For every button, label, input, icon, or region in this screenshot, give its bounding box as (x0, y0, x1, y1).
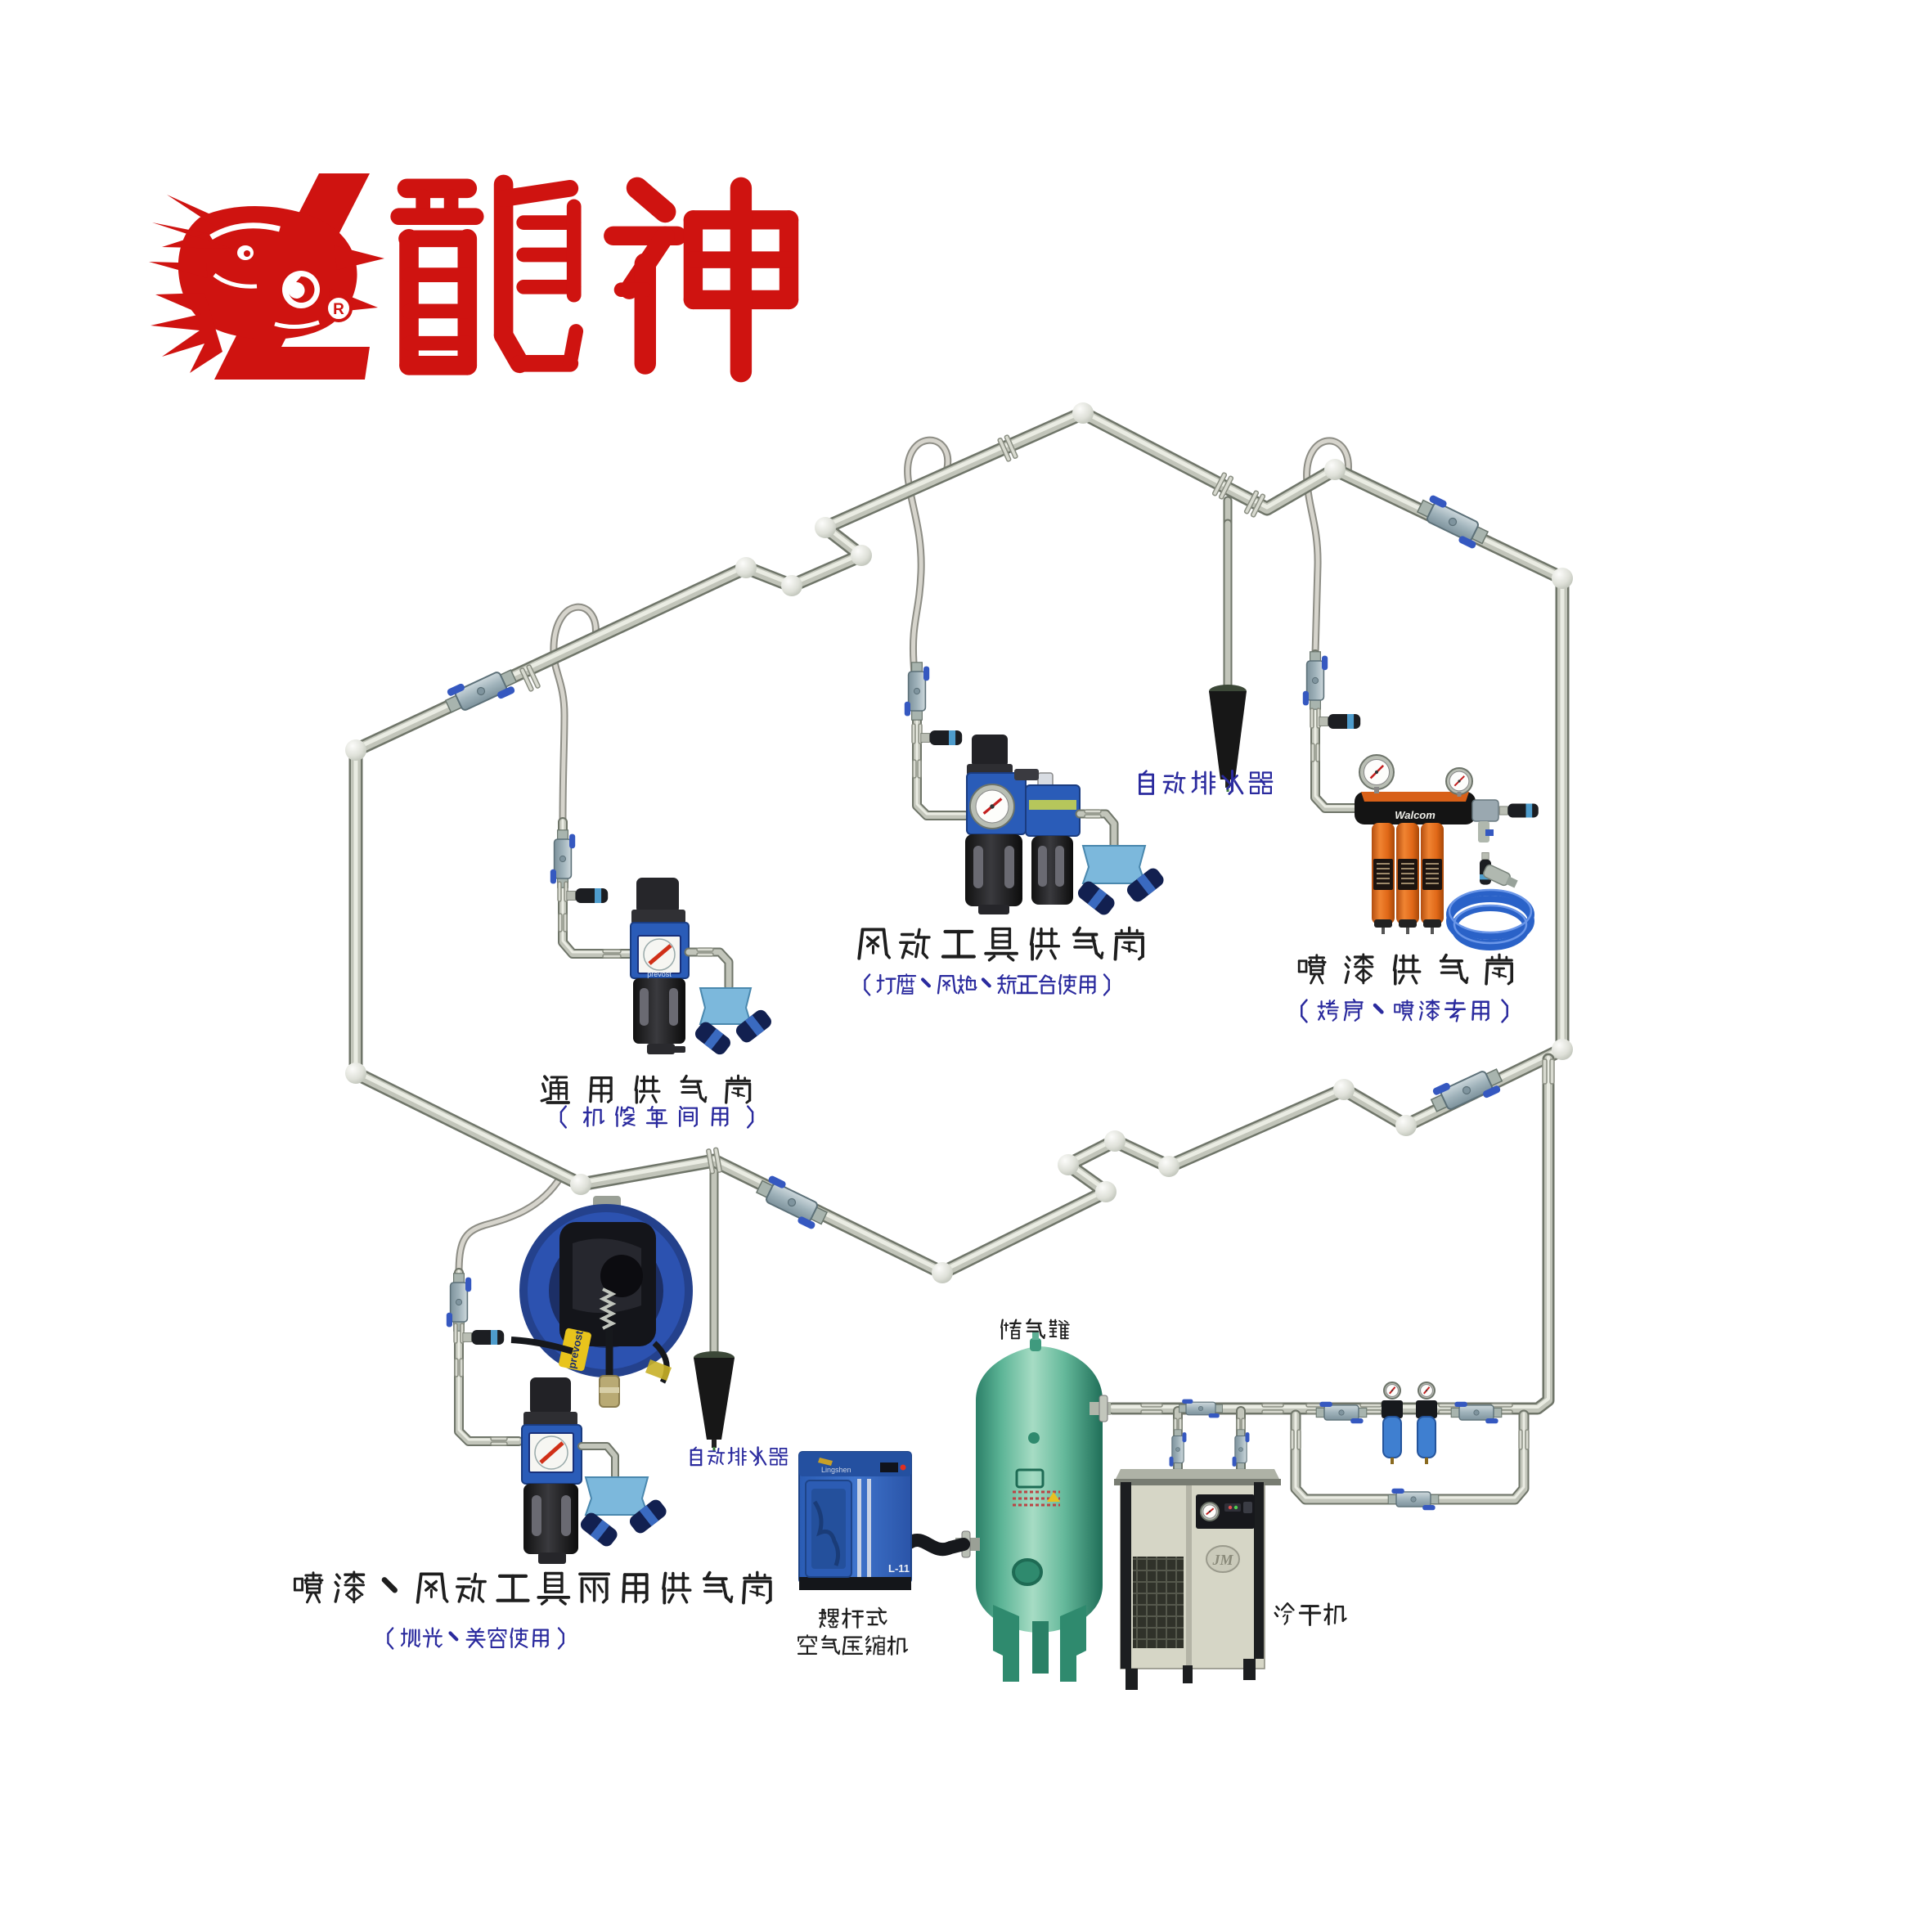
svg-text:JM: JM (1211, 1552, 1233, 1568)
svg-text:prevost: prevost (647, 970, 672, 978)
svg-text:Walcom: Walcom (1395, 809, 1436, 821)
svg-text:L-11: L-11 (888, 1562, 910, 1575)
svg-text:R: R (333, 301, 344, 318)
svg-text:Lingshen: Lingshen (821, 1466, 851, 1474)
